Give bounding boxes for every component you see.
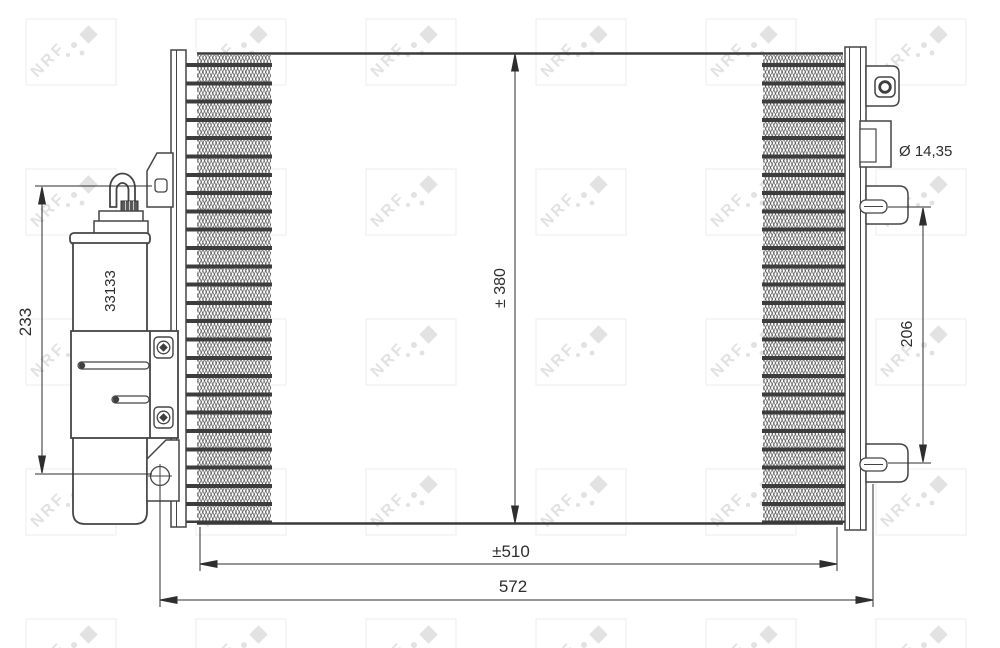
drier-cap-step-2 bbox=[94, 221, 148, 234]
dim-572-label: 572 bbox=[473, 578, 553, 596]
technical-drawing-condenser: NRFNRFNRFNRFNRFNRFNRFNRFNRFNRFNRFNRFNRFN… bbox=[0, 0, 1000, 648]
pipe-connector-block bbox=[860, 121, 891, 167]
mounting-bracket-top-left bbox=[147, 153, 173, 207]
drier-clamp-bracket bbox=[71, 331, 178, 438]
dim-510-label: ±510 bbox=[471, 543, 551, 561]
right-mounting-rail bbox=[845, 47, 866, 530]
mounting-bracket-middle-right bbox=[860, 186, 908, 224]
clamp-screw-top bbox=[154, 337, 173, 358]
dim-233-label: 233 bbox=[17, 302, 35, 342]
mounting-bracket-top-right bbox=[866, 66, 899, 106]
clamp-screw-bottom bbox=[154, 407, 173, 428]
drier-part-number-label: 33133 bbox=[102, 265, 120, 317]
dim-206-label: 206 bbox=[899, 314, 917, 354]
mounting-bracket-bottom-left bbox=[147, 440, 179, 501]
connector-diameter-label: Ø 14,35 bbox=[899, 143, 974, 161]
dimension-380 bbox=[512, 54, 519, 523]
core-outline bbox=[197, 54, 843, 524]
dim-380-label: ± 380 bbox=[492, 264, 510, 312]
